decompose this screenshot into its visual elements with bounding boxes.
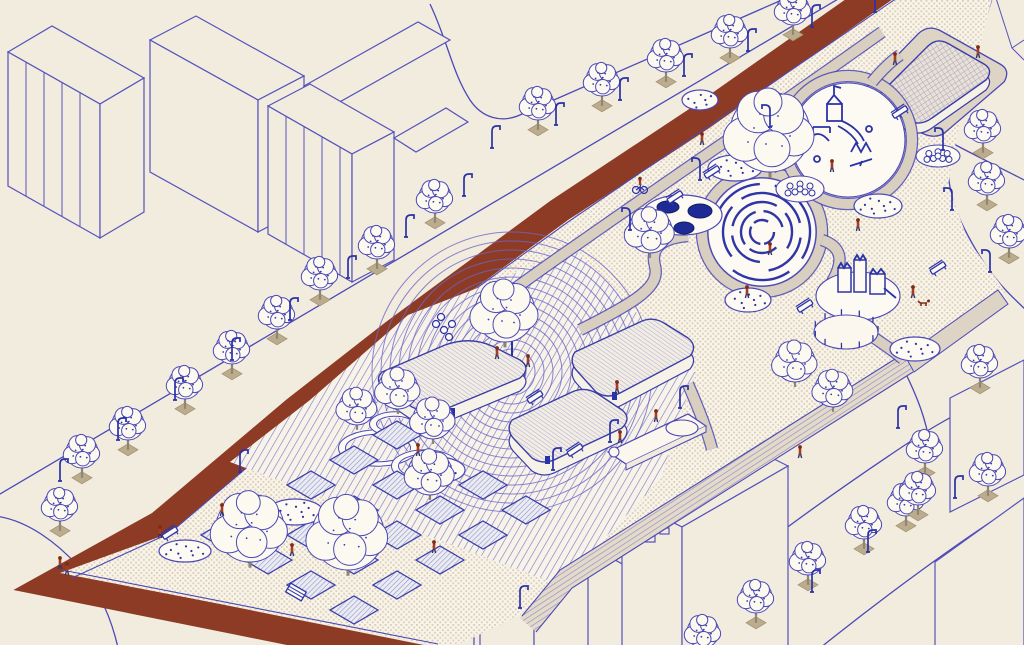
tree-canopy-lobe xyxy=(697,632,711,645)
leaf-dot xyxy=(978,119,980,121)
tree-canopy-lobe xyxy=(724,32,738,46)
leaf-dot xyxy=(640,228,642,230)
leaf-dot xyxy=(436,480,438,482)
leaf-dot xyxy=(910,505,912,507)
leaf-dot xyxy=(765,143,767,145)
person-head xyxy=(911,285,915,289)
bump-dome xyxy=(785,190,791,196)
pavilion-door xyxy=(545,456,550,464)
person-head xyxy=(526,354,530,358)
leaf-dot xyxy=(857,521,859,523)
leaf-dot xyxy=(606,85,608,87)
leaf-dot xyxy=(239,349,241,351)
person-head xyxy=(654,409,658,413)
leaf-dot xyxy=(920,482,922,484)
tree-canopy-lobe xyxy=(122,424,136,438)
mound-planting-dot xyxy=(312,514,314,516)
tree-canopy-lobe xyxy=(271,313,285,327)
tree-canopy-lobe xyxy=(802,541,813,552)
tree-canopy-lobe xyxy=(314,274,328,288)
leaf-dot xyxy=(440,474,442,476)
mound-planting-dot xyxy=(871,208,873,210)
mound-planting-dot xyxy=(289,519,291,521)
leaf-dot xyxy=(592,83,594,85)
leaf-dot xyxy=(183,387,185,389)
leaf-dot xyxy=(981,131,983,133)
tree-canopy-lobe xyxy=(974,362,988,376)
leaf-dot xyxy=(783,12,785,14)
mound-planting-dot xyxy=(179,557,181,559)
mound-planting-dot xyxy=(931,351,933,353)
mound-planting-dot xyxy=(741,302,743,304)
leaf-dot xyxy=(392,379,394,381)
leaf-dot xyxy=(973,360,975,362)
leaf-dot xyxy=(789,352,791,354)
tree-canopy-lobe xyxy=(76,434,87,445)
tree-canopy-lobe xyxy=(982,452,993,463)
person-head xyxy=(290,543,294,547)
mound-planting-dot xyxy=(202,553,204,555)
person-head xyxy=(220,503,224,507)
leaf-dot xyxy=(991,184,993,186)
leaf-dot xyxy=(977,182,979,184)
tree-canopy-lobe xyxy=(334,494,359,519)
leaf-dot xyxy=(428,195,430,197)
leaf-dot xyxy=(1004,224,1006,226)
leaf-dot xyxy=(417,478,419,480)
tree-canopy-lobe xyxy=(596,62,607,73)
leaf-dot xyxy=(60,502,62,504)
leaf-dot xyxy=(318,278,320,280)
leaf-dot xyxy=(135,425,137,427)
leaf-dot xyxy=(990,463,992,465)
mound-planting-dot xyxy=(285,503,287,505)
mound-planting-dot xyxy=(896,351,898,353)
tree-canopy-lobe xyxy=(122,406,133,417)
person-head xyxy=(432,540,436,544)
leaf-dot xyxy=(420,470,422,472)
leaf-dot xyxy=(920,439,922,441)
leaf-dot xyxy=(982,171,984,173)
bike-rack-dot xyxy=(449,321,456,328)
leaf-dot xyxy=(987,176,989,178)
leaf-dot xyxy=(841,390,843,392)
leaf-dot xyxy=(401,380,403,382)
mound-planting-dot xyxy=(759,295,761,297)
leaf-dot xyxy=(666,53,668,55)
bump-dome xyxy=(787,183,793,189)
leaf-dot xyxy=(270,311,272,313)
leaf-dot xyxy=(542,109,544,111)
leaf-dot xyxy=(696,630,698,632)
leaf-dot xyxy=(259,539,261,541)
tree-canopy-lobe xyxy=(858,523,872,537)
leaf-dot xyxy=(427,409,429,411)
leaf-dot xyxy=(241,512,243,514)
tree-canopy-lobe xyxy=(981,179,995,193)
person-head xyxy=(495,346,499,350)
leaf-dot xyxy=(753,127,755,129)
tree-canopy-lobe xyxy=(977,127,991,141)
leaf-dot xyxy=(734,37,736,39)
tree-canopy-lobe xyxy=(919,429,930,440)
leaf-dot xyxy=(545,105,547,107)
tree-canopy-lobe xyxy=(912,471,923,482)
leaf-dot xyxy=(976,125,978,127)
leaf-dot xyxy=(84,445,86,447)
leaf-dot xyxy=(75,450,77,452)
leaf-dot xyxy=(395,394,397,396)
mound-planting-dot xyxy=(303,502,305,504)
leaf-dot xyxy=(435,194,437,196)
leaf-dot xyxy=(925,490,927,492)
leaf-dot xyxy=(381,248,383,250)
leaf-dot xyxy=(838,394,840,396)
leaf-dot xyxy=(185,380,187,382)
leaf-dot xyxy=(80,456,82,458)
leaf-dot xyxy=(660,232,662,234)
leaf-dot xyxy=(322,267,324,269)
leaf-dot xyxy=(433,415,435,417)
tree-canopy-lobe xyxy=(390,388,408,406)
tree-canopy-lobe xyxy=(787,340,801,354)
bump-dome xyxy=(946,156,952,162)
leaf-dot xyxy=(705,625,707,627)
leaf-dot xyxy=(803,551,805,553)
leaf-dot xyxy=(822,393,824,395)
mound-planting-dot xyxy=(753,299,755,301)
leaf-dot xyxy=(798,562,800,564)
person-head xyxy=(158,525,162,529)
leaf-dot xyxy=(703,629,705,631)
tree-canopy-lobe xyxy=(429,197,443,211)
leaf-dot xyxy=(275,317,277,319)
mound-planting-dot xyxy=(743,307,745,309)
leaf-dot xyxy=(793,6,795,8)
mound-planting-dot xyxy=(295,506,297,508)
leaf-dot xyxy=(492,308,494,310)
leaf-dot xyxy=(501,320,503,322)
leaf-dot xyxy=(58,509,60,511)
leaf-dot xyxy=(338,517,340,519)
mound-planting-dot xyxy=(869,197,871,199)
leaf-dot xyxy=(758,590,760,592)
leaf-dot xyxy=(377,240,379,242)
leaf-dot xyxy=(798,353,800,355)
leaf-dot xyxy=(698,624,700,626)
mound-planting-dot xyxy=(720,166,722,168)
mound-planting-dot xyxy=(883,205,885,207)
tree-canopy-lobe xyxy=(371,243,385,257)
tree-canopy-lobe xyxy=(493,279,514,300)
leaf-dot xyxy=(272,305,274,307)
mound-planting-dot xyxy=(860,208,862,210)
leaf-dot xyxy=(788,1,790,3)
tree-canopy-lobe xyxy=(912,489,926,503)
mound-planting-dot xyxy=(906,340,908,342)
leaf-dot xyxy=(896,503,898,505)
bump-dome xyxy=(944,150,950,156)
tree-canopy-lobe xyxy=(750,597,764,611)
leaf-dot xyxy=(230,352,232,354)
leaf-dot xyxy=(795,2,797,4)
bump-dome xyxy=(924,156,930,162)
mound-planting-dot xyxy=(695,106,697,108)
mound-planting-dot xyxy=(864,204,866,206)
mound-planting-dot xyxy=(734,298,736,300)
tree-canopy-lobe xyxy=(858,505,869,516)
tree-canopy-lobe xyxy=(314,256,325,267)
leaf-dot xyxy=(732,25,734,27)
tree-canopy-lobe xyxy=(271,295,282,306)
leaf-dot xyxy=(425,200,427,202)
person-head xyxy=(618,430,622,434)
tree-canopy-lobe xyxy=(226,330,237,341)
leaf-dot xyxy=(246,537,248,539)
leaf-dot xyxy=(604,73,606,75)
leaf-dot xyxy=(434,463,436,465)
leaf-dot xyxy=(430,469,432,471)
leaf-dot xyxy=(723,30,725,32)
mound-planting-dot xyxy=(705,104,707,106)
leaf-dot xyxy=(234,341,236,343)
leaf-dot xyxy=(230,536,232,538)
mound-planting-dot xyxy=(176,543,178,545)
leaf-dot xyxy=(916,493,918,495)
castle-block xyxy=(854,260,866,292)
leaf-dot xyxy=(783,366,785,368)
leaf-dot xyxy=(915,450,917,452)
leaf-dot xyxy=(899,498,901,500)
mound-planting-dot xyxy=(700,94,702,96)
person-head xyxy=(768,242,772,246)
tree-canopy-lobe xyxy=(826,388,842,404)
leaf-dot xyxy=(987,132,989,134)
tree-canopy-lobe xyxy=(750,579,761,590)
castle-block xyxy=(838,268,851,292)
bump-dome xyxy=(807,183,813,189)
cyclist-head xyxy=(638,177,642,181)
leaf-dot xyxy=(72,455,74,457)
tree-canopy-lobe xyxy=(532,104,546,118)
mound-planting-dot xyxy=(170,549,172,551)
person-head xyxy=(416,443,420,447)
leaf-dot xyxy=(854,526,856,528)
leaf-dot xyxy=(55,497,57,499)
leaf-dot xyxy=(659,54,661,56)
pavilion-door xyxy=(612,392,617,400)
leaf-dot xyxy=(357,403,359,405)
leaf-dot xyxy=(789,135,791,137)
leaf-dot xyxy=(797,14,799,16)
leaf-dot xyxy=(488,319,490,321)
leaf-dot xyxy=(759,113,761,115)
leaf-dot xyxy=(833,385,835,387)
leaf-dot xyxy=(236,353,238,355)
mound-planting-dot xyxy=(165,553,167,555)
leaf-dot xyxy=(281,318,283,320)
leaf-dot xyxy=(754,601,756,603)
tree-canopy-lobe xyxy=(787,361,805,379)
leaf-dot xyxy=(983,124,985,126)
tree-canopy-lobe xyxy=(919,447,933,461)
leaf-dot xyxy=(749,595,751,597)
leaf-dot xyxy=(600,84,602,86)
leaf-dot xyxy=(344,544,346,546)
leaf-dot xyxy=(806,563,808,565)
leaf-dot xyxy=(367,246,369,248)
leaf-dot xyxy=(836,381,838,383)
leaf-dot xyxy=(362,412,364,414)
leaf-dot xyxy=(668,49,670,51)
leaf-dot xyxy=(536,108,538,110)
leaf-dot xyxy=(540,97,542,99)
tree-canopy-lobe xyxy=(179,383,193,397)
leaf-dot xyxy=(781,145,783,147)
leaf-dot xyxy=(990,128,992,130)
leaf-dot xyxy=(1002,230,1004,232)
tree-canopy-lobe xyxy=(641,207,656,222)
leaf-dot xyxy=(747,141,749,143)
leaf-dot xyxy=(1013,237,1015,239)
leaf-dot xyxy=(786,359,788,361)
leaf-dot xyxy=(1011,225,1013,227)
tree-canopy-lobe xyxy=(421,449,436,464)
leaf-dot xyxy=(868,528,870,530)
leaf-dot xyxy=(751,589,753,591)
leaf-dot xyxy=(985,183,987,185)
leaf-dot xyxy=(737,33,739,35)
leaf-dot xyxy=(130,417,132,419)
leaf-dot xyxy=(349,404,351,406)
leaf-dot xyxy=(256,514,258,516)
mound-planting-dot xyxy=(889,201,891,203)
leaf-dot xyxy=(918,486,920,488)
mound-planting-dot xyxy=(878,200,880,202)
stage-step xyxy=(609,447,619,457)
tree-canopy-lobe xyxy=(596,80,610,94)
leaf-dot xyxy=(701,636,703,638)
leaf-dot xyxy=(595,78,597,80)
leaf-dot xyxy=(327,542,329,544)
leaf-dot xyxy=(384,244,386,246)
tree-canopy-lobe xyxy=(660,38,671,49)
pond xyxy=(688,204,712,218)
leaf-dot xyxy=(531,102,533,104)
mound-planting-dot xyxy=(302,516,304,518)
mound-planting-dot xyxy=(927,344,929,346)
tree-canopy-lobe xyxy=(697,614,708,625)
mound-planting-dot xyxy=(704,99,706,101)
leaf-dot xyxy=(497,298,499,300)
leaf-dot xyxy=(533,96,535,98)
tree-canopy-lobe xyxy=(754,131,790,167)
leaf-dot xyxy=(121,422,123,424)
leaf-dot xyxy=(128,421,130,423)
leaf-dot xyxy=(800,10,802,12)
planted-mound xyxy=(159,540,211,562)
mound-planting-dot xyxy=(735,162,737,164)
tree-canopy-lobe xyxy=(390,367,404,381)
leaf-dot xyxy=(810,552,812,554)
leaf-dot xyxy=(354,412,356,414)
mound-planting-dot xyxy=(727,170,729,172)
dog-run-pad xyxy=(814,315,878,349)
leaf-dot xyxy=(828,380,830,382)
leaf-dot xyxy=(372,235,374,237)
leaf-dot xyxy=(746,600,748,602)
person-head xyxy=(830,159,834,163)
leaf-dot xyxy=(1007,236,1009,238)
leaf-dot xyxy=(267,316,269,318)
tree-canopy-lobe xyxy=(421,472,441,492)
leaf-dot xyxy=(315,266,317,268)
leaf-dot xyxy=(908,492,910,494)
leaf-dot xyxy=(375,247,377,249)
leaf-dot xyxy=(932,448,934,450)
leaf-dot xyxy=(67,506,69,508)
mound-planting-dot xyxy=(900,347,902,349)
building-slab-side xyxy=(352,132,394,282)
tree-canopy-lobe xyxy=(76,452,90,466)
bump-dome xyxy=(809,190,815,196)
leaf-dot xyxy=(978,473,980,475)
leaf-dot xyxy=(370,241,372,243)
leaf-dot xyxy=(777,115,779,117)
leaf-dot xyxy=(277,310,279,312)
leaf-dot xyxy=(433,201,435,203)
leaf-dot xyxy=(89,453,91,455)
leaf-dot xyxy=(995,471,997,473)
leaf-dot xyxy=(999,235,1001,237)
leaf-dot xyxy=(981,468,983,470)
tree-canopy-lobe xyxy=(787,9,801,23)
leaf-dot xyxy=(178,381,180,383)
leaf-dot xyxy=(427,479,429,481)
leaf-dot xyxy=(656,238,658,240)
leaf-dot xyxy=(225,346,227,348)
leaf-dot xyxy=(637,236,639,238)
leaf-dot xyxy=(439,202,441,204)
leaf-dot xyxy=(911,487,913,489)
leaf-dot xyxy=(812,564,814,566)
mound-planting-dot xyxy=(764,302,766,304)
leaf-dot xyxy=(859,515,861,517)
mound-planting-dot xyxy=(921,353,923,355)
mound-planting-dot xyxy=(915,343,917,345)
leaf-dot xyxy=(792,367,794,369)
bike-rack-dot xyxy=(441,327,448,334)
leaf-dot xyxy=(519,314,521,316)
tree-canopy-lobe xyxy=(826,369,839,382)
tree-canopy-lobe xyxy=(974,344,985,355)
person-head xyxy=(58,556,62,560)
leaf-dot xyxy=(313,272,315,274)
leaf-dot xyxy=(386,393,388,395)
leaf-dot xyxy=(992,475,994,477)
bike-rack-dot xyxy=(438,314,445,321)
leaf-dot xyxy=(333,530,335,532)
leaf-dot xyxy=(730,29,732,31)
leaf-dot xyxy=(763,598,765,600)
axonometric-park-site-plan xyxy=(0,0,1024,645)
mound-planting-dot xyxy=(454,472,456,474)
leaf-dot xyxy=(360,399,362,401)
leaf-dot xyxy=(421,423,423,425)
leaf-dot xyxy=(975,354,977,356)
leaf-dot xyxy=(725,24,727,26)
tree-canopy-lobe xyxy=(1003,232,1017,246)
